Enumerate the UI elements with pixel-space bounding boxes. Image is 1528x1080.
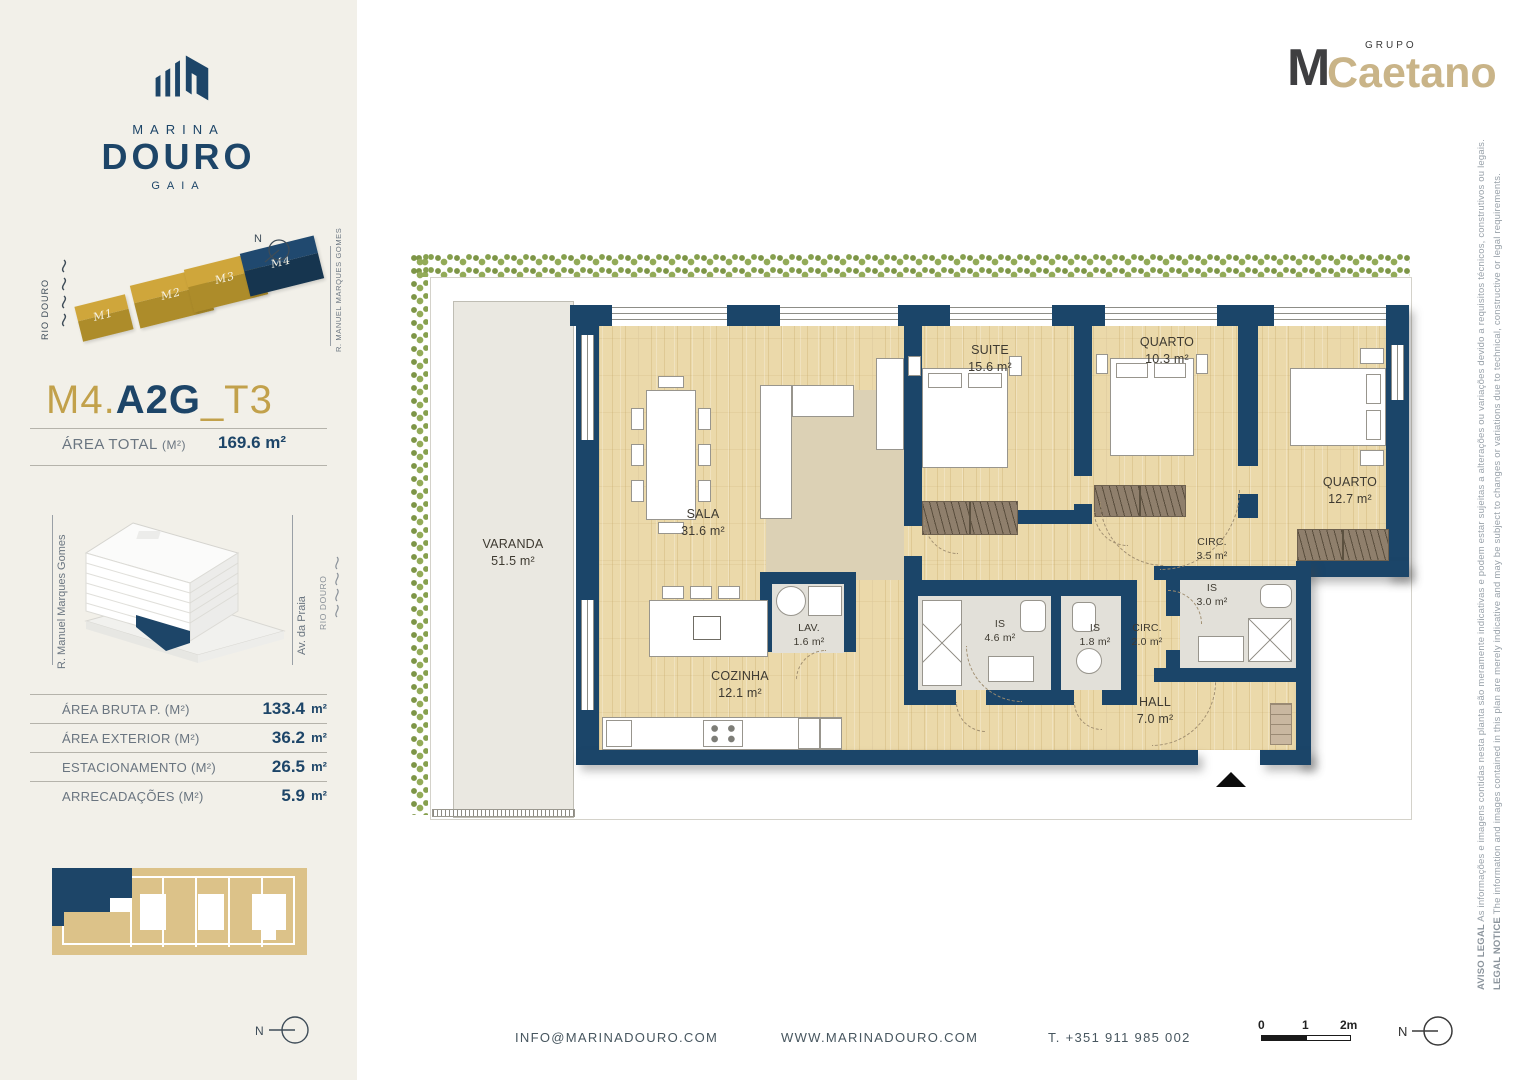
row-unit: m²: [311, 759, 327, 774]
label-circ2: CIRC.2.0 m²: [1122, 622, 1172, 650]
row-value: 5.9: [281, 786, 305, 806]
window: [1274, 307, 1386, 320]
svg-text:N: N: [254, 233, 262, 245]
table-row: ÁREA EXTERIOR (M²) 36.2 m²: [30, 724, 327, 753]
pillow: [928, 373, 962, 388]
label-is2: IS4.6 m²: [972, 618, 1028, 646]
table-row: ESTACIONAMENTO (M²) 26.5 m²: [30, 753, 327, 782]
label-quarto1: QUARTO10.3 m²: [1122, 334, 1212, 367]
wall: [904, 580, 918, 705]
chair: [698, 480, 711, 502]
hedge-left: [410, 253, 428, 815]
row-value: 26.5: [272, 757, 305, 777]
table-row: ARRECADAÇÕES (M²) 5.9 m²: [30, 782, 327, 811]
stool: [718, 586, 740, 599]
river-waves-icon: [56, 258, 72, 336]
row-label: ARRECADAÇÕES (M²): [62, 789, 204, 804]
counter-sink: [606, 720, 632, 747]
building-3d-illustration: [78, 503, 290, 673]
stool: [690, 586, 712, 599]
window: [581, 335, 594, 440]
row-label: ÁREA BRUTA P. (M²): [62, 702, 190, 717]
label-varanda: VARANDA51.5 m²: [463, 536, 563, 569]
window: [950, 307, 1052, 320]
shower: [1248, 618, 1292, 662]
row-value: 133.4: [262, 699, 305, 719]
window: [612, 307, 727, 320]
label-is3: IS1.8 m²: [1072, 622, 1118, 650]
wall: [576, 750, 1198, 765]
chair: [631, 444, 644, 466]
brand-name-top: MARINA: [0, 122, 357, 137]
wall: [1296, 561, 1409, 577]
street-right-label: Av. da Praia: [296, 525, 308, 655]
river-right-label: RIO DOURO: [318, 550, 328, 630]
wall: [1074, 326, 1092, 476]
unit-prefix: M4.: [46, 378, 116, 422]
area-total-value: 169.6 m²: [218, 433, 286, 453]
dining-table: [646, 390, 696, 520]
building-diagram: R. Manuel Marques Gomes: [0, 495, 357, 685]
site-north-icon: N: [252, 230, 296, 266]
wall: [898, 305, 950, 326]
brand-logo-icon: [140, 45, 218, 112]
label-hall: HALL7.0 m²: [1110, 694, 1200, 727]
chair: [698, 444, 711, 466]
sofa: [760, 385, 792, 519]
nightstand: [908, 356, 921, 376]
hedge-top: [415, 253, 1410, 277]
chair: [698, 408, 711, 430]
sidebar-north-icon: N: [255, 1012, 311, 1048]
area-total-row: ÁREA TOTAL (M²): [62, 436, 186, 453]
toilet: [1260, 584, 1292, 608]
row-unit: m²: [311, 730, 327, 745]
table-row: ÁREA BRUTA P. (M²) 133.4 m²: [30, 695, 327, 724]
wall: [1217, 305, 1274, 326]
row-label: ÁREA EXTERIOR (M²): [62, 731, 200, 746]
floor-location-diagram: [52, 868, 307, 955]
site-river-label: RIO DOURO: [40, 250, 50, 340]
row-unit: m²: [311, 701, 327, 716]
lav-counter: [808, 586, 842, 616]
sidebar: MARINA DOURO GAIA RIO DOURO M1 M2: [0, 0, 357, 1080]
svg-text:N: N: [255, 1024, 264, 1038]
window: [1105, 307, 1217, 320]
brand-name-main: DOURO: [0, 136, 357, 178]
footer-email[interactable]: INFO@MARINADOURO.COM: [515, 1030, 718, 1045]
pillow: [1366, 410, 1381, 440]
group-logo-m: M: [1287, 42, 1330, 94]
tall-unit: [820, 718, 842, 749]
varanda-railing: [432, 809, 575, 817]
stove: [703, 720, 743, 747]
legal-notice-en: LEGAL NOTICE The information and images …: [1492, 170, 1503, 990]
group-logo: GRUPO M Caetano: [1287, 40, 1497, 110]
pillow: [968, 373, 1002, 388]
chair: [658, 376, 684, 388]
row-label: ESTACIONAMENTO (M²): [62, 760, 216, 775]
wall: [1238, 494, 1258, 518]
label-quarto2: QUARTO12.7 m²: [1305, 474, 1395, 507]
nightstand: [1360, 348, 1384, 364]
row-value: 36.2: [272, 728, 305, 748]
label-sala: SALA31.6 m²: [658, 506, 748, 539]
block-m1: M1: [74, 294, 133, 342]
scale-0: 0: [1258, 1018, 1265, 1032]
unit-code: A2G: [116, 378, 201, 422]
street-line: [292, 515, 293, 665]
wall: [904, 580, 1137, 596]
floor-plan: VARANDA51.5 m² SALA31.6 m² SUITE15.6 m² …: [410, 250, 1415, 865]
legal-notice-pt: AVISO LEGAL As informações e imagens con…: [1476, 170, 1487, 990]
nightstand: [1096, 354, 1108, 374]
label-is1: IS3.0 m²: [1182, 582, 1242, 610]
river-waves-icon: [330, 555, 344, 625]
wall: [760, 572, 856, 584]
wall: [1052, 305, 1105, 326]
row-unit: m²: [311, 788, 327, 803]
scale-2m: 2m: [1340, 1018, 1357, 1032]
wall: [727, 305, 780, 326]
chair: [631, 480, 644, 502]
unit-title: M4.A2G_T3: [46, 378, 273, 423]
scale-bar: 0 1 2m: [1256, 1018, 1366, 1046]
tall-unit: [798, 718, 820, 749]
footer-website[interactable]: WWW.MARINADOURO.COM: [781, 1030, 978, 1045]
label-suite: SUITE15.6 m²: [945, 342, 1035, 375]
chair: [631, 408, 644, 430]
group-logo-name: Caetano: [1327, 52, 1497, 95]
label-circ1: CIRC.3.5 m²: [1172, 536, 1252, 564]
site-diagram: RIO DOURO M1 M2 M3 M4: [0, 228, 357, 363]
sink-vanity: [1198, 636, 1244, 662]
label-lav: LAV.1.6 m²: [784, 622, 834, 650]
sofa: [792, 385, 854, 417]
page: MARINA DOURO GAIA RIO DOURO M1 M2: [0, 0, 1528, 1080]
street-line: [52, 515, 53, 665]
divider: [30, 428, 327, 429]
washing-machine: [776, 586, 806, 616]
unit-typology: _T3: [201, 378, 273, 422]
wardrobe: [1297, 529, 1389, 561]
wall: [1166, 650, 1180, 668]
sink: [1076, 648, 1102, 674]
wall: [844, 572, 856, 652]
site-street-label: R. MANUEL MARQUES GOMES: [334, 242, 343, 352]
nightstand: [1360, 450, 1384, 466]
area-total-note: (M²): [162, 438, 186, 452]
wall: [1238, 326, 1258, 466]
wall: [1296, 561, 1311, 765]
pillow: [1366, 374, 1381, 404]
window: [780, 307, 898, 320]
scale-1: 1: [1302, 1018, 1309, 1032]
window: [1391, 345, 1404, 400]
shower: [922, 600, 962, 686]
street-line: [330, 246, 331, 346]
divider: [30, 465, 327, 466]
tv-console: [876, 358, 904, 450]
wall: [904, 690, 956, 705]
stool: [662, 586, 684, 599]
street-left-label: R. Manuel Marques Gomes: [56, 513, 68, 669]
wall: [904, 556, 922, 580]
wall: [1051, 596, 1061, 690]
wall: [1154, 668, 1296, 682]
footer-phone[interactable]: T. +351 911 985 002: [1048, 1030, 1191, 1045]
svg-text:N: N: [1398, 1024, 1407, 1039]
footer-north-icon: N: [1398, 1012, 1454, 1050]
wall: [1260, 750, 1311, 765]
label-cozinha: COZINHA12.1 m²: [695, 668, 785, 701]
entrance-arrow-icon: [1216, 772, 1246, 787]
area-total-label: ÁREA TOTAL: [62, 436, 157, 453]
window: [581, 600, 594, 710]
island-sink: [693, 616, 721, 640]
hall-closet: [1270, 703, 1292, 745]
brand-name-sub: GAIA: [0, 180, 357, 192]
